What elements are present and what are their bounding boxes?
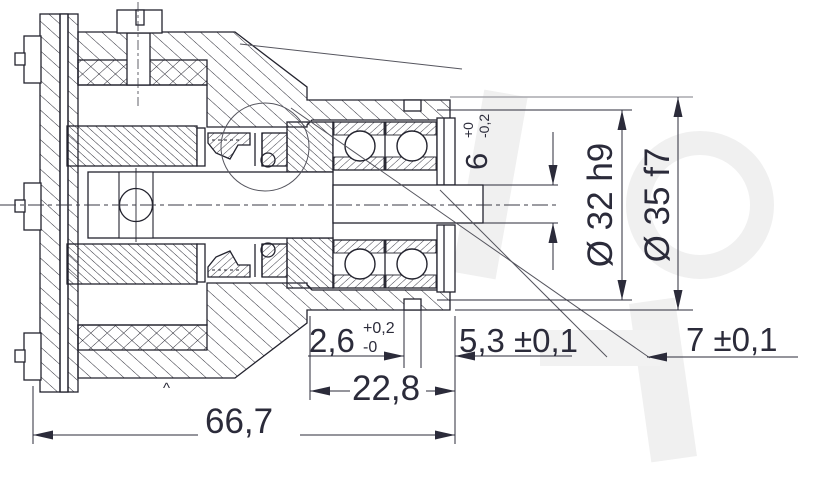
sleeve-seal-top xyxy=(67,122,333,172)
dim-groove-to-face: 5,3 ±0,1 xyxy=(459,322,578,359)
technical-drawing-page: 66,7 22,8 2,6 +0,2 -0 5,3 ±0,1 7 ±0,1 6 … xyxy=(0,0,820,480)
sleeve-seal-bottom xyxy=(67,238,333,288)
flange-screw-bottom xyxy=(15,333,41,380)
caret-mark: ^ xyxy=(163,380,170,397)
ext-groove xyxy=(404,305,421,368)
dim-slot-width: 6 xyxy=(459,153,494,170)
ball-bearing-pair-bottom xyxy=(333,240,437,288)
dim-slot-width-tol-upper: +0 xyxy=(460,122,476,138)
dim-dia-inner: Ø 32 h9 xyxy=(581,143,620,268)
dim-overall-length: 66,7 xyxy=(205,402,273,441)
cross-section-drawing: 66,7 22,8 2,6 +0,2 -0 5,3 ±0,1 7 ±0,1 6 … xyxy=(0,0,820,480)
dim-groove-width-tol-upper: +0,2 xyxy=(363,320,395,337)
dim-dia-outer-group: Ø 35 f7 xyxy=(638,148,677,263)
dim-groove-width: 2,6 xyxy=(309,322,355,359)
dim-dia-inner-group: Ø 32 h9 xyxy=(581,143,620,268)
dim-bearing-section-length: 22,8 xyxy=(352,369,420,408)
flange-screw-top xyxy=(15,36,41,83)
dim-groove-width-tol-lower: -0 xyxy=(363,339,377,356)
ball-bearing-pair-top xyxy=(333,122,437,170)
dim-dia-outer: Ø 35 f7 xyxy=(638,148,677,263)
flange-screw-middle xyxy=(15,183,41,230)
dim-slot-width-tol-lower: -0,2 xyxy=(476,114,492,138)
flange-plate xyxy=(40,14,78,392)
dim-stub-length: 7 ±0,1 xyxy=(686,321,778,358)
assembly-body xyxy=(15,10,483,392)
